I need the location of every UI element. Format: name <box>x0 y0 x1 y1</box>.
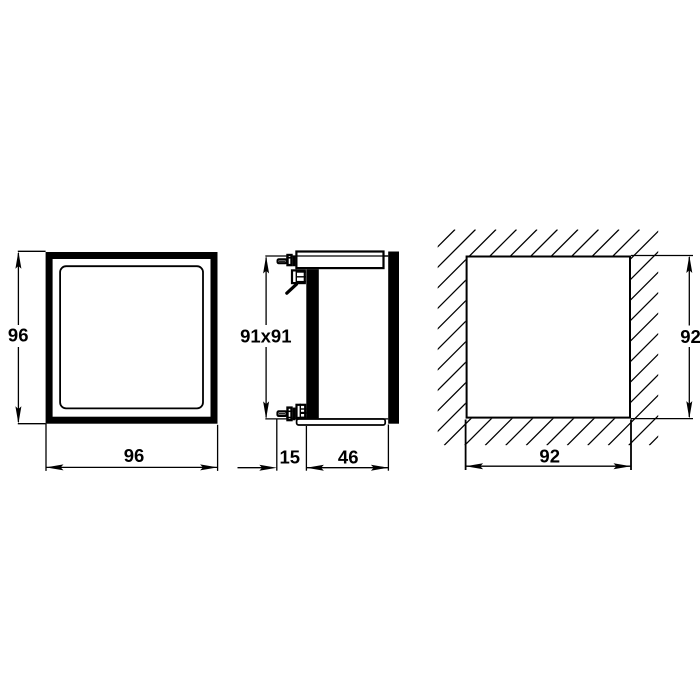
svg-text:96: 96 <box>8 325 29 346</box>
svg-text:96: 96 <box>124 445 145 466</box>
svg-text:46: 46 <box>338 447 359 468</box>
svg-text:91x91: 91x91 <box>240 326 291 347</box>
svg-text:92: 92 <box>539 445 560 466</box>
svg-text:15: 15 <box>280 447 301 468</box>
svg-text:92: 92 <box>680 326 700 347</box>
